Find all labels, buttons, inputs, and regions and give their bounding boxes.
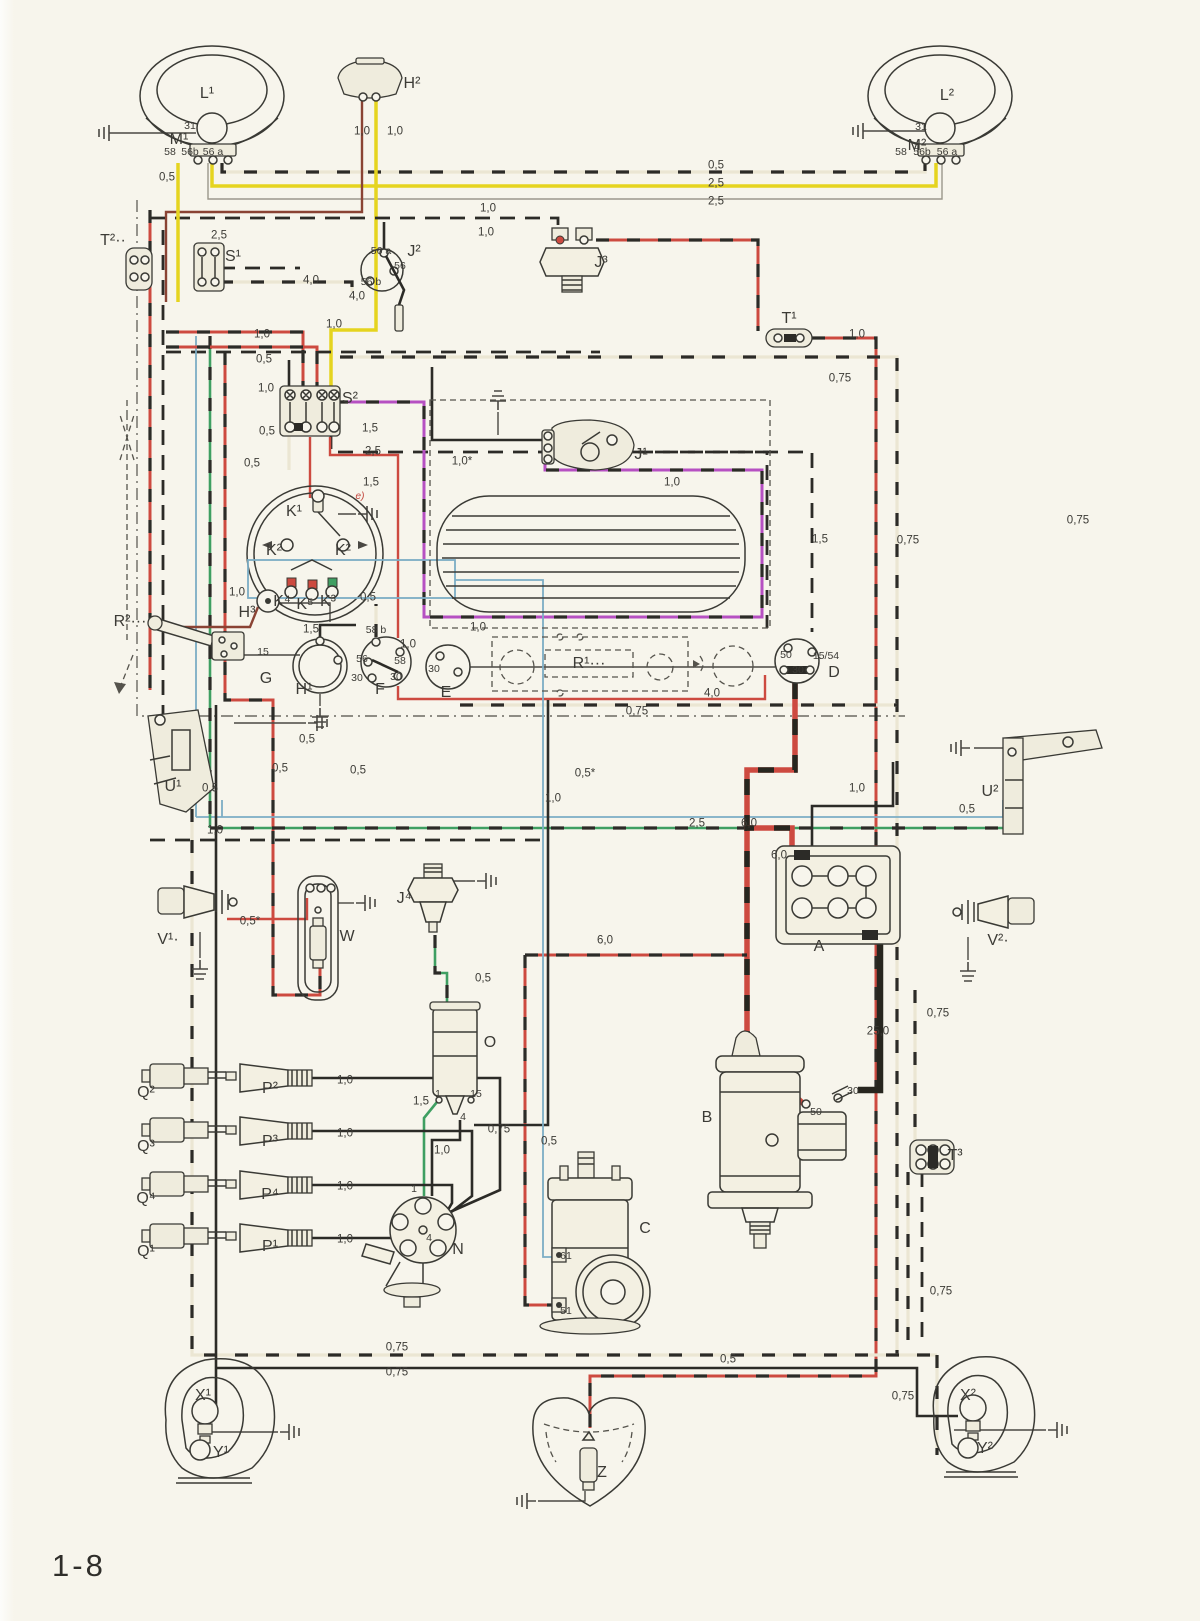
wire-gauge-label: 1,0 xyxy=(207,825,223,837)
component-label-t3: T³ xyxy=(947,1148,962,1164)
wire-gauge-label: 0,75 xyxy=(927,1008,949,1020)
component-label-h2: H² xyxy=(404,76,421,92)
component-label-k4: K⁴ xyxy=(273,594,291,610)
component-label-x1: X¹ xyxy=(195,1388,211,1404)
wire-gauge-label: 0,5 xyxy=(360,592,376,604)
terminal-label: 1 xyxy=(411,1184,417,1195)
terminal-label: 15 xyxy=(257,647,269,658)
terminal-label: 58 b xyxy=(366,625,386,636)
license-plate-light-z xyxy=(533,1398,645,1506)
wire-gauge-label: 0,75 xyxy=(386,1342,408,1354)
component-label-u2: U² xyxy=(982,784,999,800)
components-layer xyxy=(120,46,1102,1506)
speaker-grille xyxy=(437,496,745,612)
spark-plugs-q xyxy=(142,1064,236,1248)
fuse-box-s2 xyxy=(280,386,340,436)
terminal-label: 56 xyxy=(356,654,368,665)
component-label-u1: U¹ xyxy=(165,779,182,795)
antenna-r2 xyxy=(120,400,134,640)
component-label-l2: L² xyxy=(940,88,954,104)
component-label-t2: T²·· xyxy=(100,233,126,249)
component-label-y2: Y² xyxy=(977,1441,993,1457)
wire-gauge-label: 1,0 xyxy=(387,126,403,138)
tail-light-left xyxy=(165,1359,274,1483)
wire-gauge-label: 0,5 xyxy=(475,973,491,985)
component-label-k5: K⁵ xyxy=(296,597,313,613)
wire-gauge-label: 1,5 xyxy=(413,1096,429,1108)
component-label-t1: T¹ xyxy=(781,311,796,327)
wire-gauge-label: 1,0 xyxy=(337,1128,353,1140)
terminal-label: 15/54 xyxy=(813,651,839,662)
wire-gauge-label: 2,5 xyxy=(708,196,724,208)
wire-gauge-label: 1,0 xyxy=(337,1234,353,1246)
wire-gauge-label: 0,75 xyxy=(829,373,851,385)
terminal-label: 58 xyxy=(394,656,406,667)
component-label-d: D xyxy=(828,665,840,681)
component-label-x2: X² xyxy=(960,1388,976,1404)
wire-gauge-label: 1,5 xyxy=(363,477,379,489)
cable-connector-t2 xyxy=(126,248,152,290)
distributor-n xyxy=(362,1197,456,1307)
component-label-q1: Q¹ xyxy=(137,1244,155,1260)
cable-connector-t1 xyxy=(766,329,812,347)
wire-gauge-label: 1,0 xyxy=(326,319,342,331)
wire-gauge-label: 1,0 xyxy=(849,329,865,341)
wire-gauge-label: 0,75 xyxy=(892,1391,914,1403)
door-contact-v2 xyxy=(953,896,1034,928)
component-label-k3: K³ xyxy=(320,594,336,610)
terminal-label: 61 xyxy=(560,1251,572,1262)
terminal-label: 56 a xyxy=(937,147,957,158)
wire-gauge-label: 1,0 xyxy=(478,227,494,239)
terminal-label: 56 a xyxy=(203,147,223,158)
wiring-diagram-page: { "page": { "number": "1-8" }, "colors":… xyxy=(0,0,1200,1621)
generator-c xyxy=(540,1152,650,1334)
wire-gauge-label: 1,0 xyxy=(258,383,274,395)
page-number: 1-8 xyxy=(52,1548,106,1584)
component-label-p3: P³ xyxy=(262,1134,278,1150)
terminal-label: 58 xyxy=(895,147,907,158)
component-label-j4: J⁴ xyxy=(397,891,412,907)
wire-gauge-label: 6,0 xyxy=(771,850,787,862)
component-label-q2: Q² xyxy=(137,1085,155,1101)
component-label-p4: P⁴ xyxy=(261,1187,279,1203)
terminal-label: 15 xyxy=(470,1089,482,1100)
wire-gauge-label: 1,5 xyxy=(812,534,828,546)
interior-light-w xyxy=(298,876,338,1000)
component-label-s1: S¹ xyxy=(225,249,241,265)
wire-gauge-label: 6,0 xyxy=(597,935,613,947)
wire-gauge-label: 0,5 xyxy=(720,1354,736,1366)
wire-gauge-label: 4,0 xyxy=(349,291,365,303)
terminal-label: 56b xyxy=(913,147,931,158)
component-label-g: G xyxy=(260,671,272,687)
terminal-label: 56 b xyxy=(361,277,381,288)
component-label-b: B xyxy=(702,1110,713,1126)
component-label-v1: V¹· xyxy=(157,932,178,948)
terminal-label: 50 xyxy=(780,650,792,661)
component-label-k2-right: K² xyxy=(335,543,351,559)
component-label-n: N xyxy=(452,1242,464,1258)
wire-gauge-label: 0,5 xyxy=(159,172,175,184)
component-label-h3: H³ xyxy=(239,605,256,621)
wire-gauge-label: 1,0 xyxy=(849,783,865,795)
terminal-label: 31 xyxy=(915,122,927,133)
wire-gauge-label: 0,5 xyxy=(259,426,275,438)
terminal-label: 50 xyxy=(810,1107,822,1118)
component-label-r1: R¹··· xyxy=(573,656,606,672)
wire-gauge-label: 0,5 xyxy=(708,160,724,172)
wire-gauge-label: 6,0 xyxy=(741,818,757,830)
wire-gauge-label: 2,5 xyxy=(689,818,705,830)
battery-a xyxy=(776,846,900,944)
component-label-h1: H¹ xyxy=(296,682,313,698)
component-label-l1: L¹ xyxy=(200,86,214,102)
component-label-p1: P¹ xyxy=(262,1239,278,1255)
terminal-label: 1 xyxy=(435,1089,441,1100)
wire-gauge-label: 0,5 xyxy=(202,783,218,795)
component-label-f: F xyxy=(375,682,385,698)
terminal-label: 30 xyxy=(792,665,804,676)
wire-gauge-label: 0,5 xyxy=(959,804,975,816)
component-label-e: E xyxy=(441,685,452,701)
semaphore-left-u1 xyxy=(148,710,214,812)
component-label-c: C xyxy=(639,1221,651,1237)
horn xyxy=(338,58,402,101)
wire-gauge-label: 0,75 xyxy=(1067,515,1089,527)
wire-gauge-label: 0,75 xyxy=(386,1367,408,1379)
component-label-j2: J² xyxy=(407,244,420,260)
wire-gauge-label: 0,5 xyxy=(350,765,366,777)
terminal-label: 56 xyxy=(394,261,406,272)
wire-gauge-label: 0,5* xyxy=(575,768,595,780)
component-label-j3: J³ xyxy=(594,255,607,271)
wire-gauge-label: 0,5 xyxy=(256,354,272,366)
wire-gauge-label: 0,5 xyxy=(299,734,315,746)
wire-gauge-label: 1,0 xyxy=(337,1075,353,1087)
terminal-label: 30 xyxy=(847,1086,859,1097)
terminal-label: 30 xyxy=(428,664,440,675)
wire-gauge-label: 0,75 xyxy=(626,706,648,718)
starter-b xyxy=(708,1031,852,1248)
terminal-label: 31 xyxy=(184,121,196,132)
component-label-v2: V²· xyxy=(987,933,1008,949)
wire-gauge-label: e) xyxy=(356,492,365,502)
semaphore-right-u2 xyxy=(1003,730,1102,834)
component-label-j1: J¹ xyxy=(634,447,647,463)
component-label-a: A xyxy=(814,939,825,955)
terminal-label: 56b xyxy=(181,147,199,158)
wire-gauge-label: 25,0 xyxy=(867,1026,889,1038)
fuse-box-s1 xyxy=(194,243,224,291)
wire-gauge-label: 1,0 xyxy=(229,587,245,599)
component-label-q3: Q³ xyxy=(137,1139,155,1155)
wire-gauge-label: 1,0 xyxy=(480,203,496,215)
wire-gauge-label: 1,0* xyxy=(452,456,472,468)
terminal-label: 30 xyxy=(390,672,402,683)
wire-gauge-label: 1,0 xyxy=(434,1145,450,1157)
component-label-o: O xyxy=(484,1035,496,1051)
component-label-r2: R²··· xyxy=(114,614,147,630)
component-label-p2: P² xyxy=(262,1081,278,1097)
component-label-k1: K¹ xyxy=(286,504,302,520)
wire-gauge-label: 1,0 xyxy=(545,793,561,805)
terminal-label: 4 xyxy=(426,1233,432,1244)
wire-gauge-label: 2,5 xyxy=(211,230,227,242)
wire-gauge-label: 0,5 xyxy=(244,458,260,470)
terminal-label: 51 xyxy=(560,1306,572,1317)
wire-gauge-label: 2,5 xyxy=(708,178,724,190)
wire-gauge-label: 0,5* xyxy=(240,916,260,928)
wiring-diagram-canvas xyxy=(0,0,1200,1621)
wire-gauge-label: 1,0 xyxy=(337,1181,353,1193)
wire-gauge-label: 0,75 xyxy=(930,1286,952,1298)
wire-gauge-label: 4,0 xyxy=(704,688,720,700)
wire-gauge-label: 1,5 xyxy=(303,624,319,636)
component-label-y1: Y¹ xyxy=(213,1445,229,1461)
terminal-label: 30 xyxy=(351,673,363,684)
component-label-k2-left: K² xyxy=(266,543,282,559)
wire-gauge-label: 1,5 xyxy=(362,423,378,435)
wire-gauge-label: 0,75 xyxy=(897,535,919,547)
component-label-s2: S² xyxy=(342,391,358,407)
wire-gauge-label: 4,0 xyxy=(303,275,319,287)
wire-gauge-label: 1,0 xyxy=(664,477,680,489)
wire-gauge-label: 0,75 xyxy=(488,1124,510,1136)
oil-pressure-switch-j4 xyxy=(408,864,458,932)
door-contact-v1 xyxy=(158,886,237,918)
terminal-label: 56 a xyxy=(371,246,391,257)
terminal-label: 4 xyxy=(460,1112,466,1123)
wire-gauge-label: 1,0 xyxy=(354,126,370,138)
component-label-z: Z xyxy=(597,1465,607,1481)
wire-gauge-label: 2,5 xyxy=(365,446,381,458)
component-label-q4: Q⁴ xyxy=(136,1191,155,1207)
wire-gauge-label: 1,0 xyxy=(470,622,486,634)
tail-light-right xyxy=(933,1357,1034,1477)
component-label-w: W xyxy=(339,929,354,945)
wire-gauge-label: 0,5 xyxy=(272,763,288,775)
terminal-label: 58 xyxy=(164,147,176,158)
wire-gauge-label: 0,5 xyxy=(541,1136,557,1148)
wiper-motor-j1 xyxy=(542,420,634,470)
wire-gauge-label: 1,0 xyxy=(400,639,416,651)
wire-gauge-label: 1,0 xyxy=(254,329,270,341)
